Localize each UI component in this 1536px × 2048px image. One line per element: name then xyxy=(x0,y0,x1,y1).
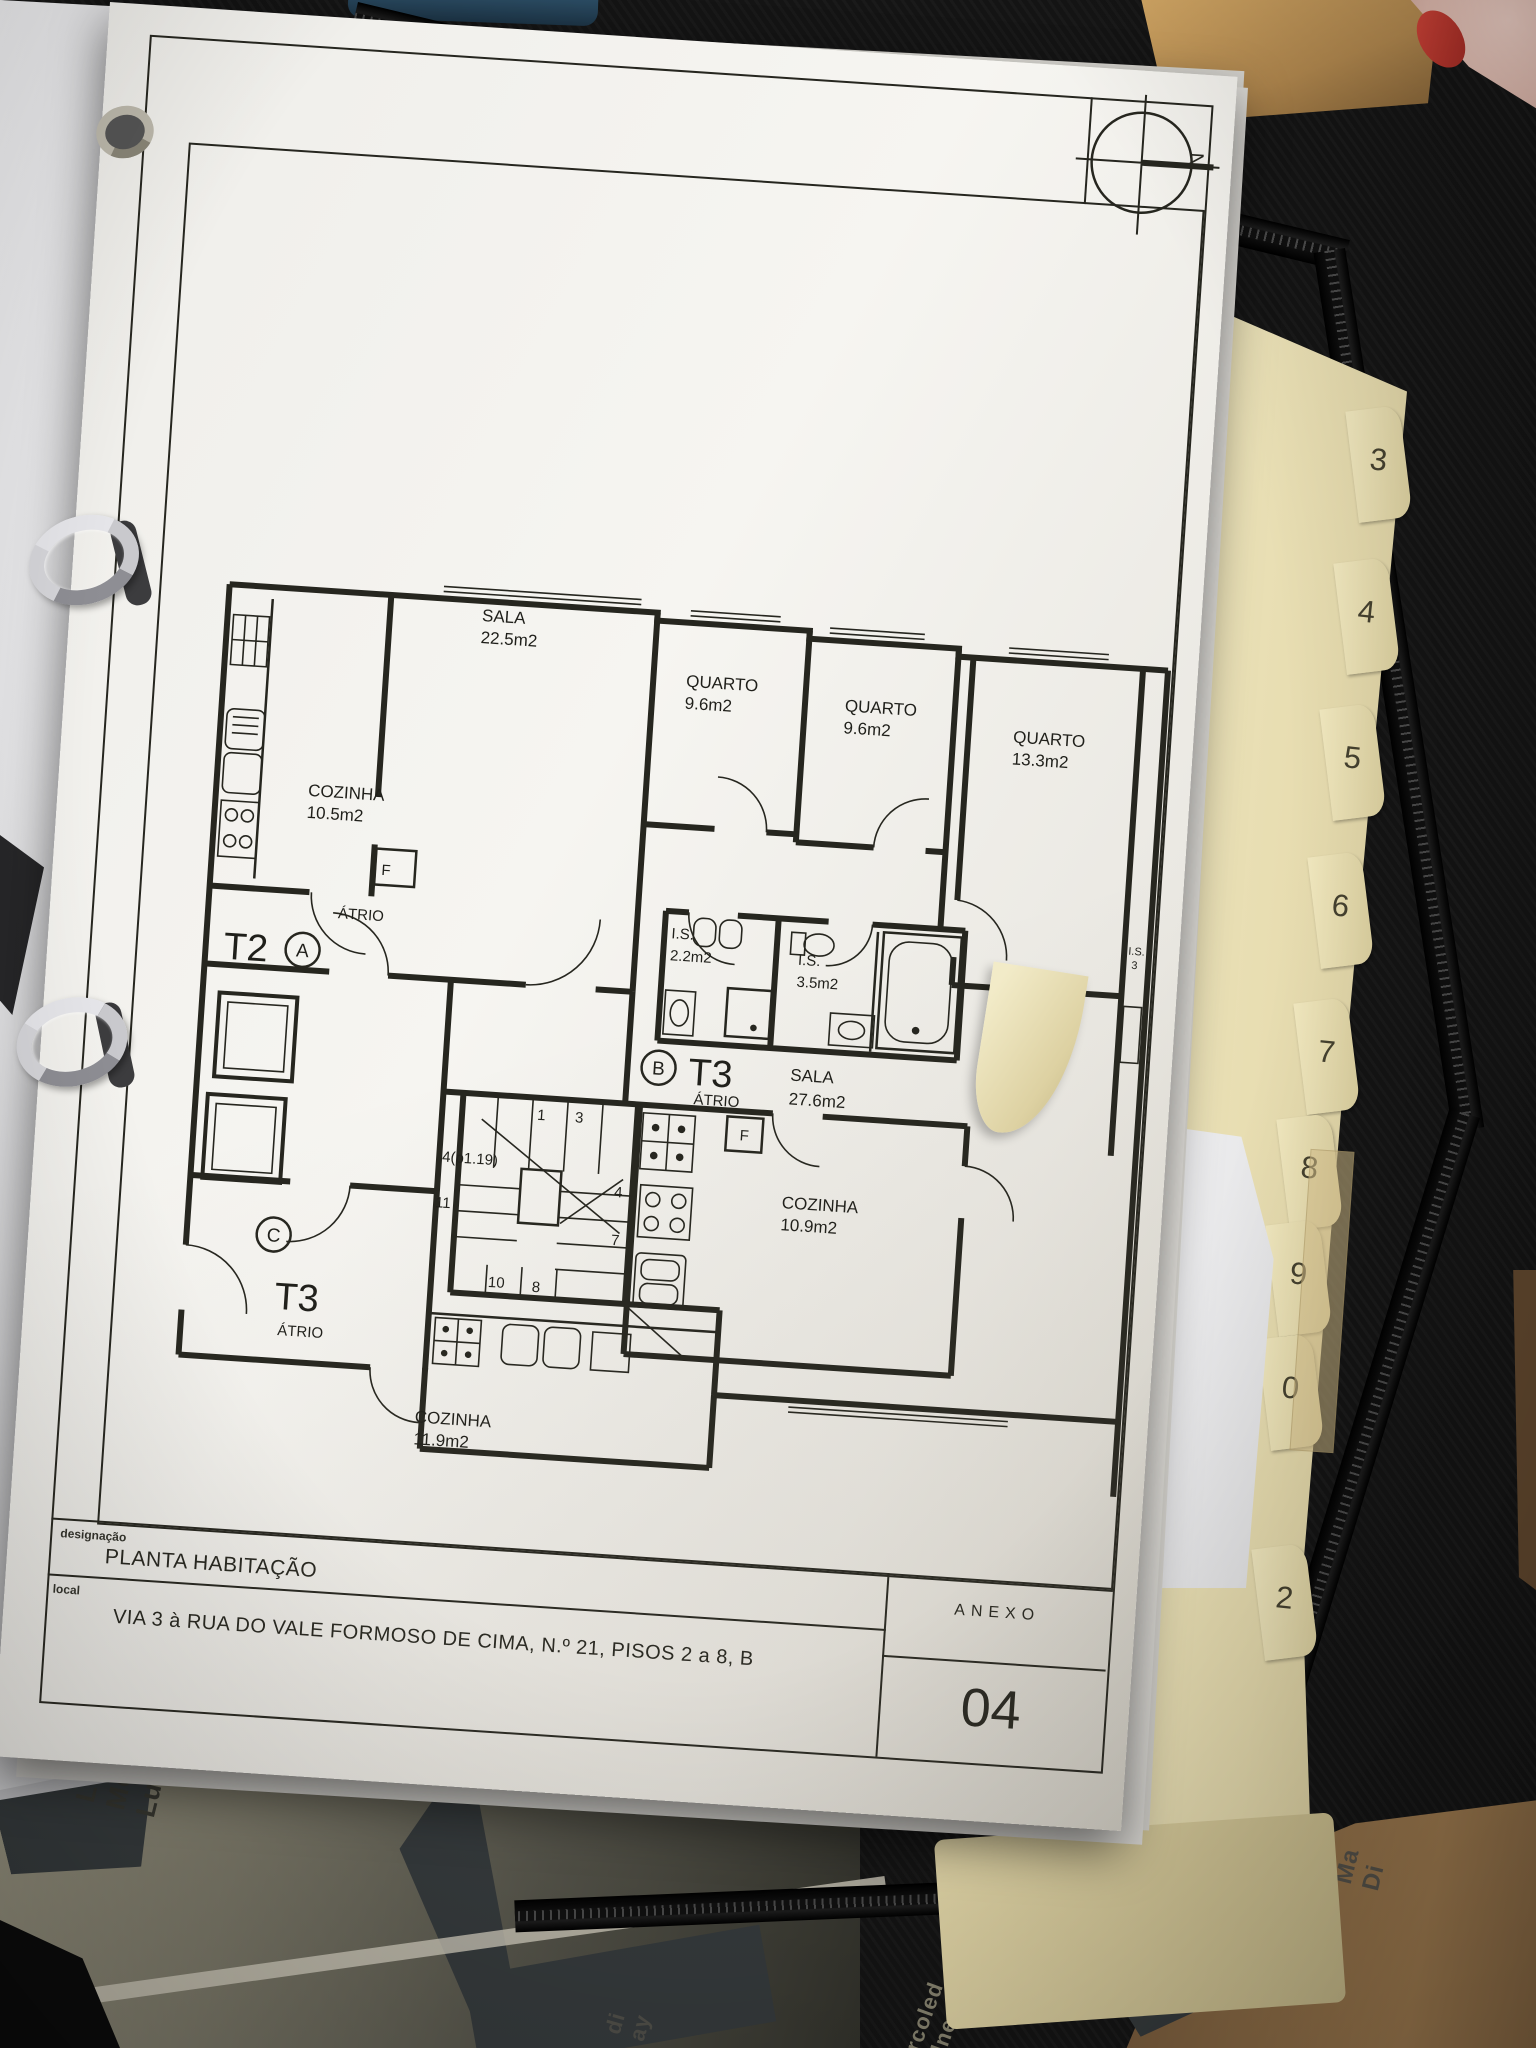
stair-steps xyxy=(450,1093,638,1302)
room-area-cozinha-b: 10.9m2 xyxy=(780,1215,838,1238)
titleblock-line xyxy=(875,1573,889,1757)
room-label-sala-b: SALA xyxy=(790,1065,835,1087)
room-area-quarto-1: 9.6m2 xyxy=(684,694,732,716)
tab-number: 2 xyxy=(1256,1577,1313,1618)
fridge-label-a: F xyxy=(381,862,391,880)
titleblock-line xyxy=(882,1655,1106,1672)
kitchen-b-fixtures xyxy=(626,1113,698,1356)
room-label-is-3: I.S. xyxy=(1128,946,1145,959)
stair-number: 8 xyxy=(531,1279,540,1297)
tab-number: 6 xyxy=(1312,885,1369,926)
unit-letter-a: A xyxy=(295,940,309,962)
stair-numbers: 1 3 4(p1.19) 4 11 7 10 8 xyxy=(429,1100,627,1301)
room-area-cozinha-a: 10.5m2 xyxy=(306,803,364,826)
kitchen-c-fixtures xyxy=(432,1317,631,1376)
unit-type-a: T2 xyxy=(222,926,269,971)
fridge-label-b: F xyxy=(739,1127,749,1145)
room-area-sala-a: 22.5m2 xyxy=(480,628,538,651)
walls-thin xyxy=(194,597,897,1341)
room-label-sala-a: SALA xyxy=(482,606,527,628)
tab-number: 7 xyxy=(1298,1031,1355,1072)
door-arcs xyxy=(175,744,1041,1461)
stair-number: 1 xyxy=(537,1107,546,1125)
room-labels: SALA 22.5m2 QUARTO 9.6m2 QUARTO 9.6m2 QU… xyxy=(265,595,1091,1489)
unit-letter-b: B xyxy=(651,1058,665,1080)
room-area-sala-b: 27.6m2 xyxy=(788,1089,846,1112)
room-label-quarto-3: QUARTO xyxy=(1013,728,1086,752)
floor-plan-sheet: N xyxy=(0,2,1238,1831)
atrio-label-c: ÁTRIO xyxy=(277,1322,324,1342)
room-area-quarto-2: 9.6m2 xyxy=(843,718,891,740)
room-label-is-1: I.S. xyxy=(671,925,695,943)
anexo-number: 04 xyxy=(879,1671,1103,1747)
local-value: VIA 3 à RUA DO VALE FORMOSO DE CIMA, N.º… xyxy=(112,1606,754,1672)
room-label-quarto-2: QUARTO xyxy=(844,696,917,720)
atrio-label-a: ÁTRIO xyxy=(338,905,385,925)
stair-number: 7 xyxy=(610,1232,619,1250)
photo-of-floor-plan-in-binder: Lundi Montag Lunes Ma Di rcoled dnes di … xyxy=(0,0,1536,2048)
unit-letter-c: C xyxy=(266,1225,281,1247)
stair-number: 4 xyxy=(614,1184,623,1202)
compass-cell-line xyxy=(1084,97,1093,204)
stair-number: 11 xyxy=(435,1194,452,1212)
titleblock-line xyxy=(51,1517,1111,1589)
tab-number: 3 xyxy=(1350,439,1407,480)
room-area-is-3: 3 xyxy=(1131,960,1138,972)
unit-designators: T2 A B T3 C T3 xyxy=(199,926,740,1347)
designacao-label: designação xyxy=(60,1526,127,1544)
unit-type-c: T3 xyxy=(273,1276,320,1321)
room-label-quarto-1: QUARTO xyxy=(686,672,759,696)
stair-number: 4(p1.19) xyxy=(442,1149,499,1170)
tab-number: 5 xyxy=(1324,737,1381,778)
room-label-cozinha-a: COZINHA xyxy=(308,781,386,805)
tab-number: 4 xyxy=(1338,591,1395,632)
inner-border-frame xyxy=(97,143,1205,1592)
folded-divider-bottom xyxy=(934,1812,1346,2029)
atrio-label-b: ÁTRIO xyxy=(693,1091,740,1111)
stair-number: 3 xyxy=(575,1109,584,1127)
room-area-quarto-3: 13.3m2 xyxy=(1011,749,1069,772)
outer-border-frame xyxy=(39,35,1213,1774)
anexo-label: ANEXO xyxy=(887,1597,1108,1630)
unit-type-b: T3 xyxy=(687,1052,734,1097)
wooden-desk-sliver xyxy=(1498,1270,1536,1590)
room-label-cozinha-c: COZINHA xyxy=(414,1407,492,1431)
room-area-is-1: 2.2m2 xyxy=(669,947,712,967)
north-compass xyxy=(1056,84,1246,256)
local-label: local xyxy=(52,1582,80,1598)
room-area-is-2: 3.5m2 xyxy=(796,974,839,994)
stair-number: 10 xyxy=(487,1274,505,1292)
room-area-cozinha-c: 11.9m2 xyxy=(413,1429,470,1452)
room-label-is-2: I.S. xyxy=(797,952,821,970)
titleblock-line xyxy=(48,1573,886,1631)
designacao-value: PLANTA HABITAÇÃO xyxy=(104,1545,318,1583)
north-letter: N xyxy=(1183,152,1207,168)
kitchen-a-fixtures xyxy=(218,615,272,859)
room-label-cozinha-b: COZINHA xyxy=(781,1193,859,1217)
